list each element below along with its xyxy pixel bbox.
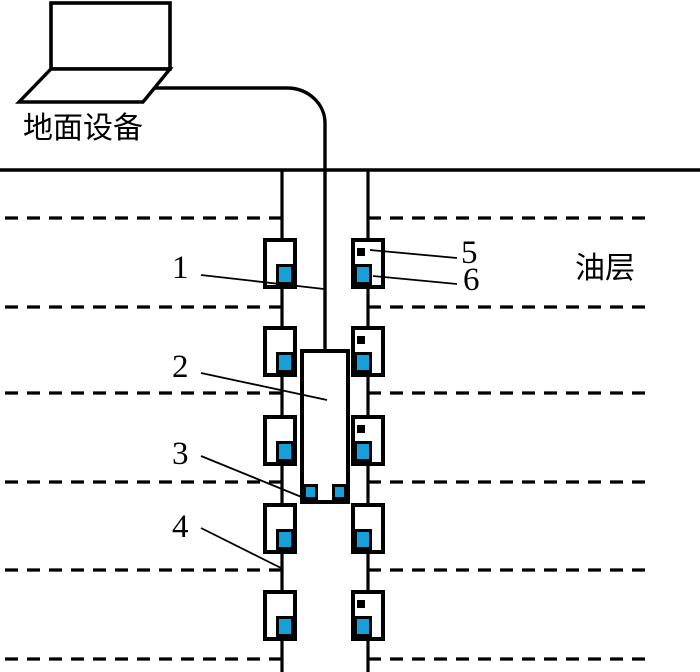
sensor-port — [357, 355, 369, 370]
sensor-chip — [357, 248, 365, 256]
laptop-base-icon — [19, 69, 170, 102]
sensor-port — [357, 444, 369, 459]
sensor-chip — [357, 425, 365, 433]
downhole-tool-body — [302, 351, 348, 502]
tool-port-left — [306, 487, 315, 497]
callout-label-4: 4 — [172, 511, 189, 544]
sensor-port — [357, 532, 369, 547]
sensor-port — [279, 532, 291, 547]
surface-equipment-label: 地面设备 — [23, 114, 143, 144]
diagram-canvas — [0, 0, 700, 672]
leader-line-1 — [201, 275, 324, 289]
callout-label-1: 1 — [172, 252, 189, 285]
callout-label-2: 2 — [172, 351, 189, 384]
oil-layer-label: 油层 — [575, 254, 635, 284]
tool-port-right — [335, 487, 344, 497]
callout-label-6: 6 — [463, 264, 480, 297]
logging-cable — [155, 88, 325, 351]
sensor-chip — [357, 336, 365, 344]
sensor-port — [279, 444, 291, 459]
callout-label-3: 3 — [172, 438, 189, 471]
leader-line-6 — [373, 276, 457, 284]
sensor-port — [279, 619, 291, 634]
sensor-port — [357, 267, 369, 282]
laptop-screen-icon — [51, 3, 170, 69]
sensor-port — [279, 267, 291, 282]
sensor-chip — [357, 600, 365, 608]
well-monitoring-diagram: 地面设备 油层 1 2 3 4 5 6 — [0, 0, 700, 672]
sensor-port — [357, 619, 369, 634]
sensor-port — [279, 355, 291, 370]
